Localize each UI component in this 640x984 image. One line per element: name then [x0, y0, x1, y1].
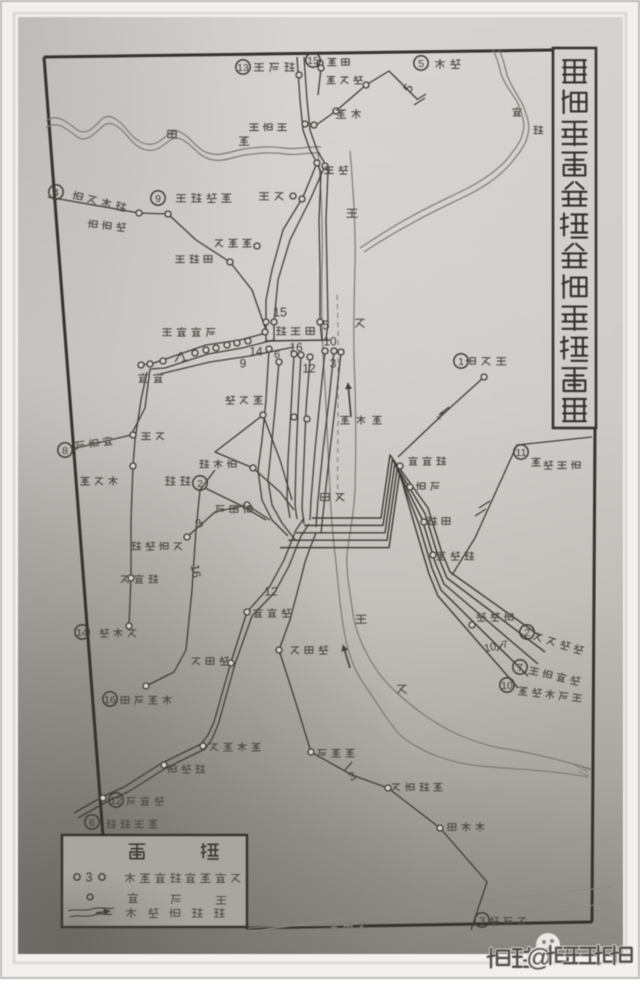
svg-text:8: 8 — [62, 445, 68, 457]
svg-text:3: 3 — [86, 871, 93, 885]
svg-text:2: 2 — [524, 627, 530, 639]
svg-text:14: 14 — [249, 344, 263, 358]
svg-text:@: @ — [526, 944, 551, 972]
svg-text:7: 7 — [517, 662, 523, 674]
svg-text:13: 13 — [237, 62, 249, 74]
svg-text:12: 12 — [264, 584, 278, 598]
svg-text:10: 10 — [501, 680, 513, 692]
svg-text:6: 6 — [274, 349, 280, 361]
svg-text:3: 3 — [330, 356, 337, 370]
svg-text:6: 6 — [89, 817, 95, 829]
svg-text:11: 11 — [516, 447, 527, 459]
svg-text:2: 2 — [197, 478, 203, 490]
svg-text:5: 5 — [323, 319, 330, 333]
svg-text:15: 15 — [307, 55, 319, 67]
svg-text:5: 5 — [418, 58, 424, 70]
svg-text:3: 3 — [479, 915, 485, 927]
svg-text:1: 1 — [458, 356, 464, 368]
svg-text:16: 16 — [188, 563, 204, 579]
svg-text:16: 16 — [289, 340, 303, 354]
svg-text:4: 4 — [53, 187, 59, 199]
svg-text:9: 9 — [240, 356, 247, 370]
svg-text:12: 12 — [302, 361, 316, 375]
svg-text:9: 9 — [155, 193, 161, 205]
svg-text:14: 14 — [76, 627, 88, 639]
svg-text:16: 16 — [104, 694, 116, 706]
svg-text:10: 10 — [323, 334, 337, 348]
svg-text:12: 12 — [110, 795, 122, 807]
svg-text:15: 15 — [273, 306, 287, 320]
svg-text:10: 10 — [483, 641, 497, 655]
